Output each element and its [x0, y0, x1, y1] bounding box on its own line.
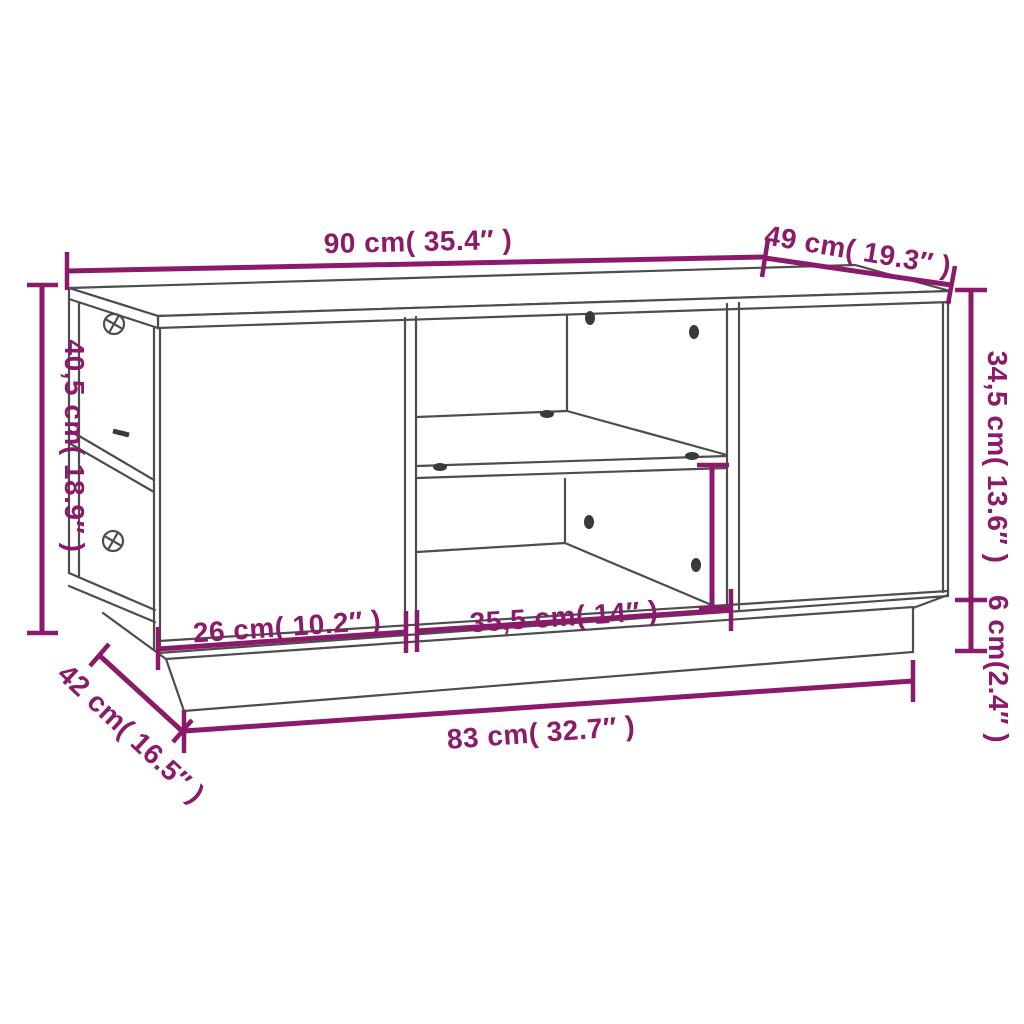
- dimension-diagram: 90 cm( 35.4″ ) 49 cm( 19.3″ ) 40,5 cm( 1…: [0, 0, 1024, 1024]
- floor-back-edge: [417, 543, 565, 552]
- cabinet-body: [154, 302, 948, 653]
- furniture-line-art: [0, 0, 1024, 1024]
- back-wall-screw-2: [689, 325, 699, 339]
- top-panel: [69, 265, 950, 328]
- shelf-screw-right: [685, 452, 699, 460]
- middle-compartment: [417, 315, 727, 606]
- back-wall-screw-4: [691, 558, 701, 572]
- dimension-interior-height: [697, 465, 730, 608]
- shelf-right-junction: [567, 411, 727, 455]
- side-screw-top: [104, 314, 124, 334]
- dimension-label-total-height: 40,5 cm( 18.9″ ): [60, 340, 88, 553]
- side-screw-bottom: [103, 531, 123, 551]
- shelf-front-bottom-edge: [417, 468, 727, 478]
- back-wall-screw-3: [584, 515, 594, 529]
- dimension-label-base-height: 6 cm(2.4″ ): [984, 595, 1012, 743]
- dimension-total-height: [27, 285, 58, 633]
- screws: [103, 311, 701, 572]
- shelf-screw-back: [540, 410, 554, 418]
- dimension-label-top-width: 90 cm( 35.4″ ): [323, 226, 512, 258]
- shelf-front-top-edge: [417, 456, 727, 466]
- side-shelf-pin: [113, 431, 129, 435]
- back-wall-screw-1: [585, 311, 595, 325]
- dimension-label-body-height: 34,5 cm( 13.6″ ): [983, 351, 1011, 564]
- shelf-screw-front: [433, 463, 447, 471]
